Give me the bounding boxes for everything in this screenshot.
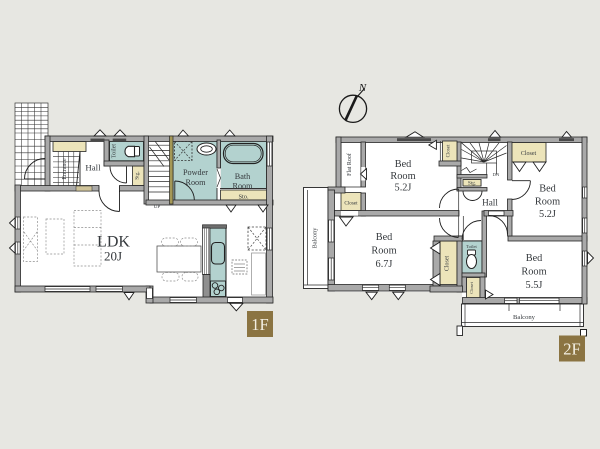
svg-text:UP: UP — [154, 204, 161, 210]
svg-text:Room: Room — [185, 178, 206, 187]
svg-text:Room: Room — [232, 182, 253, 191]
svg-text:Hall: Hall — [482, 198, 498, 208]
svg-text:5.2J: 5.2J — [539, 209, 556, 220]
svg-text:Bed: Bed — [526, 253, 543, 264]
svg-text:Balcony: Balcony — [312, 227, 319, 249]
svg-text:Bath: Bath — [235, 172, 250, 181]
svg-text:Flat Roof: Flat Roof — [346, 153, 353, 176]
svg-text:Balcony: Balcony — [513, 314, 536, 321]
svg-text:Bed: Bed — [395, 159, 412, 170]
svg-text:Room: Room — [371, 246, 396, 257]
svg-text:Closet: Closet — [447, 144, 452, 157]
svg-text:2F: 2F — [563, 340, 580, 359]
svg-text:Sto.: Sto. — [238, 194, 249, 201]
svg-text:Closet: Closet — [344, 201, 358, 207]
svg-text:Room: Room — [390, 171, 415, 182]
svg-text:N: N — [358, 82, 367, 94]
svg-text:Hall: Hall — [85, 163, 101, 173]
svg-text:5.2J: 5.2J — [395, 183, 412, 194]
svg-text:6.7J: 6.7J — [376, 259, 393, 270]
svg-text:20J: 20J — [104, 249, 122, 264]
svg-text:Powder: Powder — [183, 168, 208, 177]
svg-text:Closet: Closet — [521, 151, 537, 157]
svg-text:Bed: Bed — [376, 232, 393, 243]
svg-text:1F: 1F — [251, 315, 268, 334]
svg-text:Stg.: Stg. — [134, 171, 140, 180]
svg-text:Toilet: Toilet — [466, 244, 477, 249]
svg-text:Bed: Bed — [539, 184, 556, 195]
svg-text:Entrance: Entrance — [62, 158, 68, 180]
svg-text:5.5J: 5.5J — [526, 280, 543, 291]
svg-text:Toilet: Toilet — [111, 144, 118, 159]
svg-text:Room: Room — [535, 197, 560, 208]
svg-text:DN: DN — [493, 172, 500, 177]
svg-text:Room: Room — [521, 267, 546, 278]
svg-text:Closet: Closet — [469, 281, 474, 293]
svg-text:Stg.: Stg. — [468, 181, 476, 187]
svg-text:Closet: Closet — [445, 256, 451, 272]
